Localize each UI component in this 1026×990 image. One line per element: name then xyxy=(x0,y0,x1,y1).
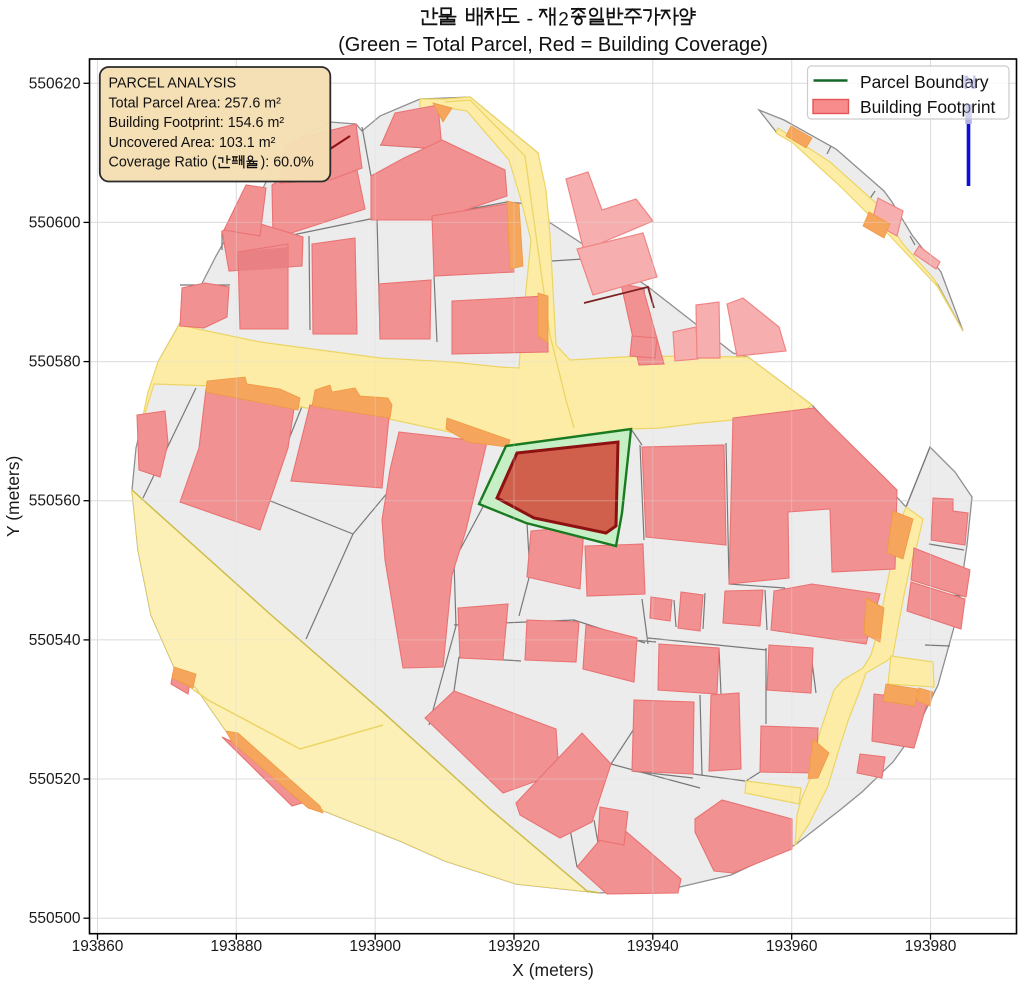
svg-text:2: 2 xyxy=(558,10,569,31)
svg-text:N: N xyxy=(963,73,977,94)
svg-text:193900: 193900 xyxy=(349,938,401,955)
svg-text:PARCEL ANALYSIS: PARCEL ANALYSIS xyxy=(109,76,237,92)
svg-text:550600: 550600 xyxy=(29,214,81,231)
svg-text:Coverage Ratio (: Coverage Ratio ( xyxy=(109,155,217,171)
svg-text:550560: 550560 xyxy=(29,493,81,510)
svg-text:550620: 550620 xyxy=(29,75,81,92)
svg-text:Uncovered Area: 103.1 m²: Uncovered Area: 103.1 m² xyxy=(109,135,276,151)
svg-text:-: - xyxy=(527,8,534,30)
svg-text:(Green = Total Parcel, Red = B: (Green = Total Parcel, Red = Building Co… xyxy=(338,34,768,56)
svg-text:550500: 550500 xyxy=(29,910,81,927)
svg-text:Building Footprint: Building Footprint xyxy=(860,97,996,117)
svg-text:Total Parcel Area: 257.6 m²: Total Parcel Area: 257.6 m² xyxy=(109,95,282,111)
svg-text:193920: 193920 xyxy=(488,938,540,955)
svg-text:): 60.0%: ): 60.0% xyxy=(261,155,315,171)
svg-text:550520: 550520 xyxy=(29,771,81,788)
svg-text:Y (meters): Y (meters) xyxy=(3,456,23,537)
svg-text:Building Footprint: 154.6 m²: Building Footprint: 154.6 m² xyxy=(109,115,285,131)
svg-text:193860: 193860 xyxy=(72,938,124,955)
svg-text:550540: 550540 xyxy=(29,632,81,649)
svg-text:X (meters): X (meters) xyxy=(512,960,594,980)
svg-text:550580: 550580 xyxy=(29,354,81,371)
svg-text:193960: 193960 xyxy=(766,938,818,955)
svg-text:193880: 193880 xyxy=(210,938,262,955)
svg-text:193940: 193940 xyxy=(627,938,679,955)
svg-text:193980: 193980 xyxy=(905,938,957,955)
